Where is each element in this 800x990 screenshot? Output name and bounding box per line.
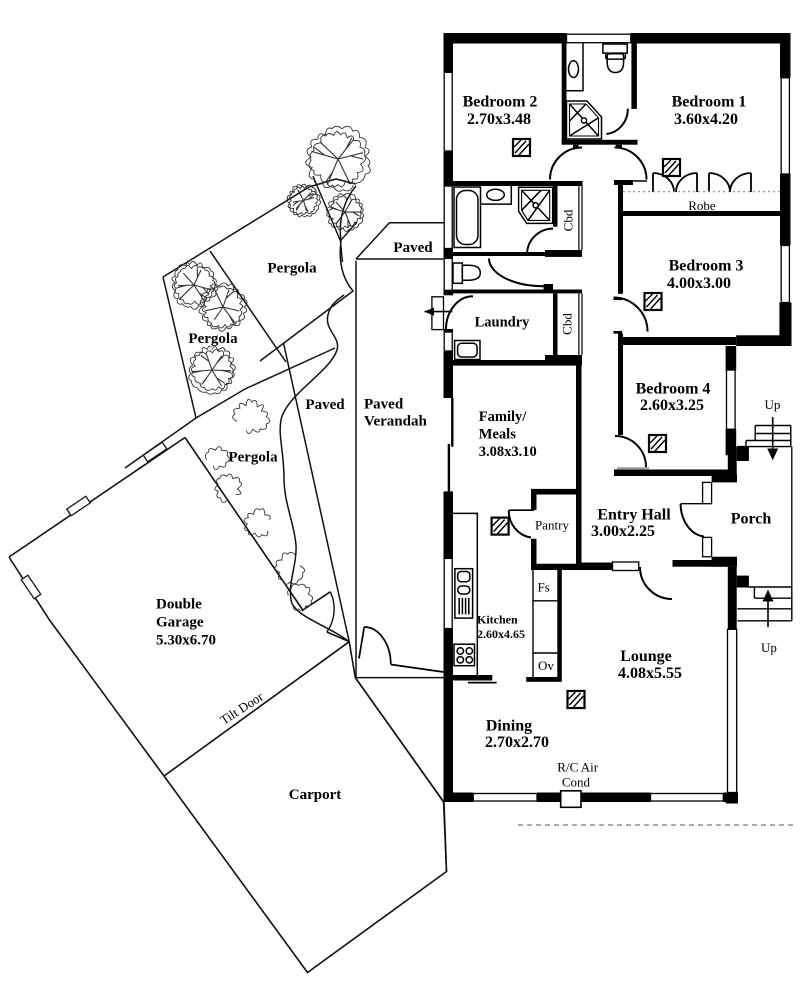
svg-text:Family/: Family/: [479, 409, 527, 425]
svg-text:Laundry: Laundry: [475, 315, 531, 331]
svg-text:Entry Hall: Entry Hall: [597, 507, 671, 524]
svg-text:Porch: Porch: [731, 511, 772, 528]
svg-text:Kitchen: Kitchen: [477, 613, 518, 627]
svg-text:Bedroom 4: Bedroom 4: [636, 381, 711, 398]
svg-text:Double: Double: [156, 597, 202, 613]
svg-text:3.60x4.20: 3.60x4.20: [674, 111, 738, 128]
svg-text:Garage: Garage: [156, 615, 204, 631]
svg-text:3.00x2.25: 3.00x2.25: [591, 523, 655, 540]
svg-text:Meals: Meals: [479, 427, 516, 443]
svg-text:Ov: Ov: [538, 658, 554, 673]
svg-text:Bedroom 1: Bedroom 1: [672, 94, 747, 111]
svg-text:Bedroom 3: Bedroom 3: [669, 258, 744, 275]
svg-text:Cond: Cond: [562, 775, 591, 790]
svg-text:4.08x5.55: 4.08x5.55: [618, 665, 682, 682]
svg-text:4.00x3.00: 4.00x3.00: [667, 275, 731, 292]
svg-text:3.08x3.10: 3.08x3.10: [479, 444, 537, 460]
svg-text:Up: Up: [761, 640, 777, 655]
svg-text:R/C Air: R/C Air: [557, 760, 598, 775]
svg-text:5.30x6.70: 5.30x6.70: [156, 633, 216, 649]
svg-text:Lounge: Lounge: [620, 648, 672, 665]
svg-text:Paved: Paved: [305, 397, 345, 413]
svg-text:Up: Up: [765, 397, 781, 412]
svg-text:Bedroom 2: Bedroom 2: [463, 94, 538, 111]
svg-text:Dining: Dining: [486, 718, 532, 735]
svg-text:Fs: Fs: [537, 580, 549, 595]
svg-text:Paved: Paved: [364, 397, 404, 413]
svg-text:2.60x3.25: 2.60x3.25: [640, 397, 704, 414]
svg-text:Pergola: Pergola: [267, 261, 317, 277]
svg-text:Pantry: Pantry: [535, 518, 569, 533]
svg-text:Carport: Carport: [289, 787, 342, 803]
svg-text:Cbd: Cbd: [560, 313, 575, 335]
svg-text:Paved: Paved: [393, 240, 433, 256]
svg-text:Pergola: Pergola: [228, 450, 278, 466]
svg-text:Pergola: Pergola: [188, 331, 238, 347]
svg-text:2.70x2.70: 2.70x2.70: [485, 734, 549, 751]
svg-text:Cbd: Cbd: [561, 209, 576, 231]
svg-text:Robe: Robe: [688, 198, 716, 213]
svg-text:2.60x4.65: 2.60x4.65: [477, 627, 525, 641]
svg-text:Verandah: Verandah: [364, 414, 427, 430]
svg-text:2.70x3.48: 2.70x3.48: [467, 111, 531, 128]
